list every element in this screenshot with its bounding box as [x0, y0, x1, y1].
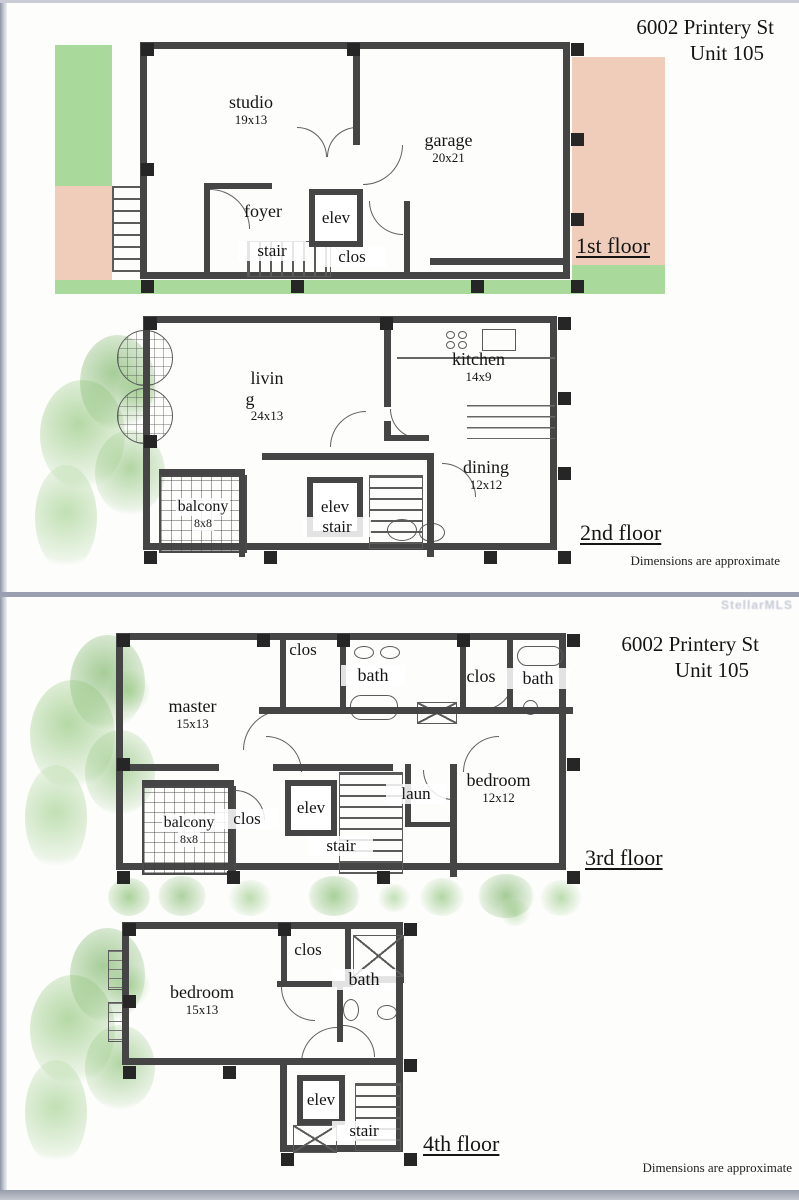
wall-post	[144, 551, 157, 564]
wall-post	[291, 280, 304, 293]
wall-segment	[353, 49, 360, 145]
address-line1: 6002 Printery St	[621, 632, 759, 656]
room-label: elev	[307, 1090, 335, 1110]
dimensions-note-upper: Dimensions are approximate	[600, 553, 780, 569]
kitchen-sink	[482, 329, 516, 351]
site-lawn-block	[55, 45, 112, 186]
wall-post	[144, 435, 157, 448]
tree-foliage	[308, 876, 360, 916]
wall-segment	[142, 780, 234, 786]
wall-post	[404, 923, 417, 936]
door-arc	[343, 1025, 375, 1057]
room-label: stair	[332, 1121, 396, 1141]
address-title-upper: 6002 Printery St Unit 105	[612, 14, 774, 67]
room-label: bedroom	[148, 982, 256, 1003]
tree-foliage	[25, 1060, 87, 1165]
deck-box	[293, 1125, 337, 1153]
wall-post	[404, 1059, 417, 1072]
wall-post	[347, 43, 360, 56]
room-label: g	[222, 389, 278, 410]
room-dims: 19x13	[196, 113, 306, 128]
room-label: foyer	[228, 201, 298, 222]
room-dims: 24x13	[222, 409, 312, 424]
room-bedroom: bedroom 12x12	[446, 770, 551, 806]
floor1-label: 1st floor	[576, 233, 650, 259]
room-label: studio	[196, 92, 306, 113]
room-label: bath	[341, 665, 405, 686]
toilet-fixture	[343, 999, 359, 1021]
elevator-shaft: elev	[297, 1075, 345, 1125]
elevator-shaft: elev	[309, 189, 363, 247]
wall-post	[404, 1153, 417, 1166]
wall-segment	[384, 323, 391, 407]
sink-fixture	[380, 646, 400, 659]
wall-segment	[273, 764, 393, 771]
sink-fixture	[377, 1005, 397, 1020]
wall-post	[281, 1153, 294, 1166]
wall-post	[558, 467, 571, 480]
room-label: bath	[332, 969, 396, 990]
address-title-lower: 6002 Printery St Unit 105	[597, 631, 759, 684]
image-divider	[0, 592, 799, 597]
page-left-border	[0, 0, 7, 1200]
room-dims: 15x13	[140, 717, 245, 732]
tree-foliage	[35, 465, 97, 570]
room-dims: 8x8	[178, 832, 200, 847]
wall-post	[278, 923, 291, 936]
room-bedroom: bedroom 15x13	[148, 982, 256, 1018]
wall-segment	[427, 453, 434, 557]
wall-post	[337, 634, 350, 647]
room-dims: 12x12	[446, 791, 551, 806]
balcony-deck: balcony 8x8	[159, 475, 247, 553]
balcony-deck: balcony 8x8	[142, 786, 236, 875]
room-clos-mid: clos	[215, 809, 279, 829]
room-dims: 8x8	[192, 516, 214, 531]
room-clos-right: clos	[449, 666, 513, 687]
room-label: elev	[321, 497, 349, 517]
stove-burner	[446, 331, 455, 339]
wall-post	[571, 43, 584, 56]
room-stair: stair	[303, 517, 371, 537]
door-arc	[369, 201, 403, 235]
tree-foliage	[420, 878, 464, 916]
door-arc	[297, 127, 327, 157]
wall-post	[558, 392, 571, 405]
toilet-fixture	[387, 519, 417, 541]
room-label: dining	[441, 457, 531, 478]
page-bottom-border	[0, 1190, 799, 1200]
address-line2: Unit 105	[612, 40, 774, 66]
room-bath: bath	[332, 969, 396, 990]
wall-post	[117, 871, 130, 884]
room-label: clos	[215, 809, 279, 829]
wall-post	[558, 551, 571, 564]
sink-fixture	[354, 646, 374, 659]
room-clos: clos	[276, 940, 340, 960]
wall-segment	[123, 764, 219, 771]
tree-foliage	[540, 880, 582, 916]
wall-post	[264, 551, 277, 564]
wall-post	[141, 280, 154, 293]
room-label: elev	[297, 798, 325, 818]
wall-post	[144, 317, 157, 330]
wall-segment	[384, 435, 429, 441]
door-arc	[281, 987, 315, 1021]
wall-segment	[337, 982, 343, 1042]
wall-segment	[204, 183, 272, 189]
wall-post	[567, 758, 580, 771]
room-label: balcony	[162, 814, 217, 832]
room-label: master	[140, 696, 245, 717]
wall-post	[484, 551, 497, 564]
room-living: livin g 24x13	[222, 368, 312, 424]
wall-post	[117, 634, 130, 647]
wall-segment	[430, 258, 570, 265]
tree-foliage	[228, 880, 272, 916]
entry-steps	[112, 186, 142, 272]
address-line1: 6002 Printery St	[636, 15, 774, 39]
room-dims: 20x21	[396, 151, 501, 166]
wall-post	[457, 634, 470, 647]
floor3-label: 3rd floor	[585, 845, 663, 871]
wall-post	[471, 280, 484, 293]
room-label: stair	[238, 241, 306, 261]
wall-segment	[239, 469, 245, 557]
room-stair: stair	[309, 836, 373, 856]
page-top-border	[0, 0, 799, 3]
room-label: clos	[449, 666, 513, 687]
wall-post	[380, 317, 393, 330]
room-label: stair	[303, 517, 371, 537]
wall-segment	[159, 469, 245, 475]
kitchen-island	[467, 405, 555, 439]
room-clos: clos	[318, 247, 386, 267]
room-label: balcony	[176, 498, 231, 516]
room-label: stair	[309, 836, 373, 856]
room-dims: 15x13	[148, 1003, 256, 1018]
room-garage: garage 20x21	[396, 130, 501, 166]
elevator-shaft: elev	[285, 780, 337, 836]
wall-segment	[259, 707, 573, 714]
room-foyer: foyer	[228, 201, 298, 222]
room-label: clos	[271, 640, 335, 660]
wall-post	[123, 1066, 136, 1079]
address-line2: Unit 105	[597, 657, 759, 683]
room-stair: stair	[332, 1121, 396, 1141]
bathtub	[517, 646, 563, 666]
wall-post	[567, 634, 580, 647]
wall-post	[567, 871, 580, 884]
site-drive-block	[55, 186, 112, 281]
wall-post	[571, 133, 584, 146]
tree-foliage	[378, 884, 410, 912]
floor1-plan: elev	[140, 42, 570, 279]
room-label: clos	[318, 247, 386, 267]
tree-foliage	[158, 876, 206, 916]
room-stair: stair	[238, 241, 306, 261]
room-master: master 15x13	[140, 696, 245, 732]
wall-post	[571, 280, 584, 293]
wall-post	[571, 213, 584, 226]
wall-post	[257, 634, 270, 647]
mls-watermark: StellarMLS	[721, 598, 793, 612]
room-label: bath	[506, 668, 570, 689]
floorplan-page: StellarMLS 6002 Printery St Unit 105 ele…	[0, 0, 799, 1200]
room-label: garage	[396, 130, 501, 151]
wall-segment	[262, 453, 427, 460]
room-dining: dining 12x12	[441, 457, 531, 493]
staircase	[355, 1083, 401, 1151]
stove-burner	[458, 341, 467, 349]
wall-post	[227, 871, 240, 884]
room-bath1: bath	[341, 665, 405, 686]
dimensions-note-lower: Dimensions are approximate	[607, 1160, 792, 1176]
floor4-label: 4th floor	[423, 1131, 499, 1157]
room-laun: laun	[386, 784, 446, 804]
wall-post	[377, 871, 390, 884]
door-arc	[330, 411, 366, 447]
room-label: clos	[276, 940, 340, 960]
stove-burner	[458, 331, 467, 339]
room-studio: studio 19x13	[196, 92, 306, 128]
room-label: elev	[322, 208, 350, 228]
room-bath2: bath	[506, 668, 570, 689]
wall-segment	[404, 201, 410, 272]
site-lawn-block	[572, 265, 665, 281]
room-clos-top: clos	[271, 640, 335, 660]
stove-burner	[446, 341, 455, 349]
wall-post	[223, 1066, 236, 1079]
wall-post	[141, 43, 154, 56]
wall-post	[123, 923, 136, 936]
wall-post	[558, 317, 571, 330]
wall-segment	[204, 183, 210, 275]
wall-post	[141, 163, 154, 176]
floor2-label: 2nd floor	[580, 520, 661, 546]
room-label: laun	[386, 784, 446, 804]
door-arc	[463, 736, 499, 772]
wall-segment	[405, 822, 456, 827]
room-dims: 12x12	[441, 478, 531, 493]
room-label: livin	[222, 368, 312, 389]
wall-post	[117, 758, 130, 771]
room-label: kitchen	[436, 349, 521, 370]
room-dims: 14x9	[436, 370, 521, 385]
tree-foliage	[25, 765, 87, 870]
room-label: bedroom	[446, 770, 551, 791]
room-kitchen: kitchen 14x9	[436, 349, 521, 385]
tree-foliage	[500, 900, 530, 926]
wall-post	[123, 995, 136, 1008]
